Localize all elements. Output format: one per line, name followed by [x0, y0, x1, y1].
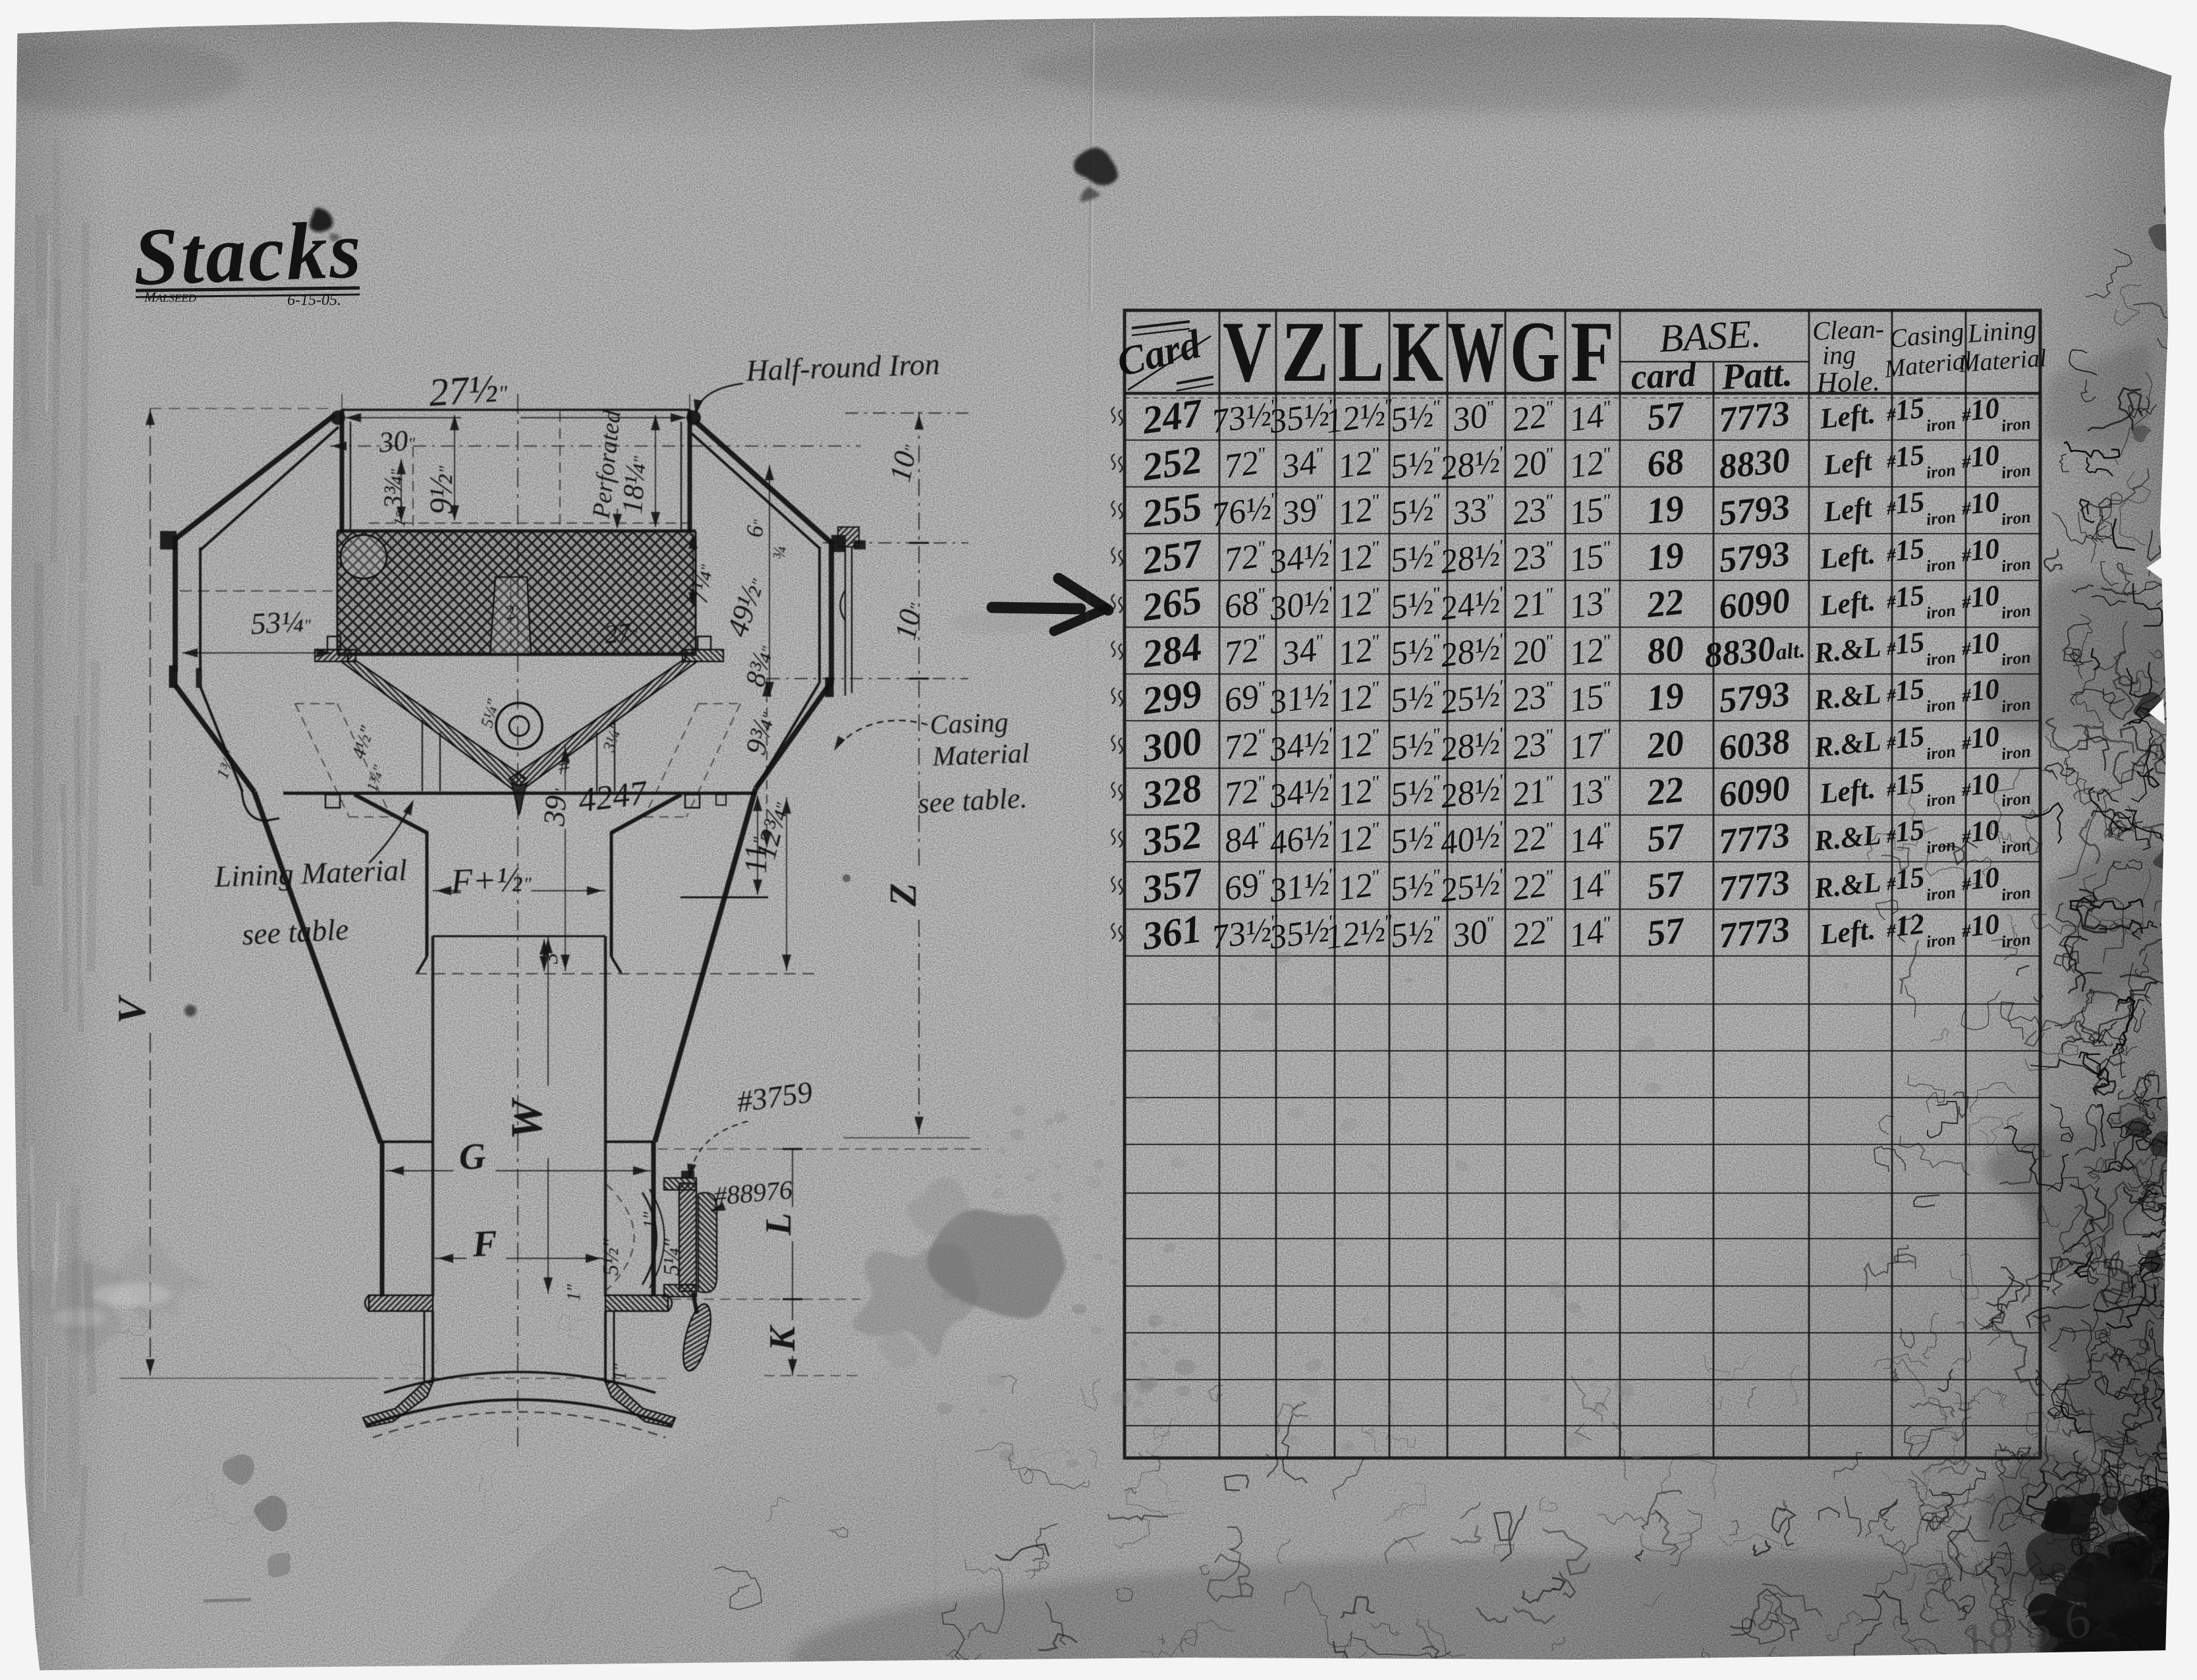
svg-text:7773: 7773: [1717, 909, 1792, 956]
svg-text:57: 57: [1645, 910, 1687, 955]
svg-text:5½″: 5½″: [599, 1238, 623, 1276]
svg-text:Material: Material: [932, 739, 1030, 772]
svg-text:1″: 1″: [610, 1363, 630, 1380]
svg-text:Hole.: Hole.: [1815, 364, 1880, 399]
svg-text:see table.: see table.: [917, 781, 1028, 820]
svg-text:300: 300: [1139, 719, 1204, 770]
svg-text:5793: 5793: [1717, 534, 1792, 580]
svg-text:F: F: [1571, 303, 1614, 400]
svg-text:MALSEED: MALSEED: [144, 289, 197, 305]
svg-text:22: 22: [1644, 769, 1686, 814]
svg-text:5¼″: 5¼″: [659, 1238, 684, 1276]
svg-text:BASE.: BASE.: [1658, 312, 1762, 360]
svg-text:247: 247: [1139, 391, 1206, 442]
svg-text:7773: 7773: [1717, 393, 1792, 440]
svg-text:F+½″: F+½″: [449, 859, 532, 901]
svg-text:265: 265: [1139, 578, 1204, 629]
svg-text:352: 352: [1139, 812, 1204, 864]
svg-text:Z: Z: [1281, 303, 1329, 400]
svg-text:19: 19: [1645, 488, 1686, 532]
svg-text:Left: Left: [1821, 491, 1874, 528]
svg-text:57: 57: [1645, 816, 1687, 860]
svg-text:5793: 5793: [1717, 487, 1792, 534]
svg-text:357: 357: [1139, 860, 1206, 911]
svg-text:257: 257: [1139, 531, 1206, 582]
svg-text:V: V: [1223, 303, 1271, 400]
svg-text:361: 361: [1139, 907, 1204, 958]
svg-text:255: 255: [1139, 484, 1204, 536]
svg-text:Left.: Left.: [1818, 538, 1877, 576]
svg-text:53¼″: 53¼″: [250, 604, 312, 641]
svg-text:¾: ¾: [769, 546, 790, 561]
svg-text:6-15-05.: 6-15-05.: [287, 292, 341, 309]
svg-text:Left.: Left.: [1818, 772, 1877, 810]
svg-text:6090: 6090: [1717, 768, 1792, 815]
svg-text:Z: Z: [881, 883, 924, 907]
svg-text:Left.: Left.: [1818, 397, 1877, 435]
svg-text:Half-round Iron: Half-round Iron: [745, 347, 941, 387]
svg-text:Patt.: Patt.: [1720, 353, 1793, 398]
svg-text:1″: 1″: [564, 1284, 584, 1301]
svg-text:G: G: [458, 1136, 487, 1178]
svg-text:card: card: [1630, 354, 1698, 397]
svg-text:V: V: [110, 994, 153, 1024]
svg-text:80: 80: [1645, 628, 1686, 673]
svg-text:299: 299: [1139, 671, 1204, 723]
svg-text:L: L: [758, 1213, 799, 1236]
svg-text:Lining Material: Lining Material: [213, 853, 408, 893]
svg-text:5793: 5793: [1717, 674, 1792, 721]
svg-text:1″: 1″: [640, 1212, 661, 1229]
svg-text:19: 19: [1645, 534, 1686, 579]
svg-text:6038: 6038: [1717, 721, 1792, 768]
svg-text:W: W: [1447, 303, 1504, 400]
svg-text:K: K: [1392, 303, 1443, 400]
svg-text:57: 57: [1645, 394, 1687, 439]
svg-text:68: 68: [1645, 441, 1686, 486]
svg-text:Left.: Left.: [1818, 913, 1877, 951]
svg-text:G: G: [1510, 303, 1560, 400]
svg-text:Left: Left: [1821, 444, 1874, 482]
svg-text:7773: 7773: [1717, 862, 1792, 909]
svg-text:see table: see table: [241, 912, 350, 951]
svg-text:284: 284: [1139, 625, 1204, 676]
svg-text:L: L: [1338, 303, 1384, 400]
svg-text:6090: 6090: [1717, 580, 1792, 627]
svg-text:22: 22: [1644, 581, 1686, 626]
svg-text:7773: 7773: [1717, 815, 1792, 862]
svg-text:Casing: Casing: [930, 708, 1009, 741]
svg-text:W: W: [501, 1097, 551, 1140]
svg-text:Lining: Lining: [1966, 314, 2037, 348]
svg-text:Left.: Left.: [1818, 584, 1877, 623]
svg-text:19: 19: [1645, 675, 1686, 719]
svg-text:20: 20: [1644, 722, 1686, 767]
svg-text:K: K: [762, 1324, 803, 1352]
svg-text:57: 57: [1645, 863, 1687, 908]
svg-text:252: 252: [1139, 437, 1204, 489]
svg-text:8830: 8830: [1717, 440, 1792, 487]
svg-text:328: 328: [1139, 766, 1204, 817]
svg-text:18¼″: 18¼″: [616, 454, 652, 515]
svg-text:F: F: [471, 1223, 499, 1265]
